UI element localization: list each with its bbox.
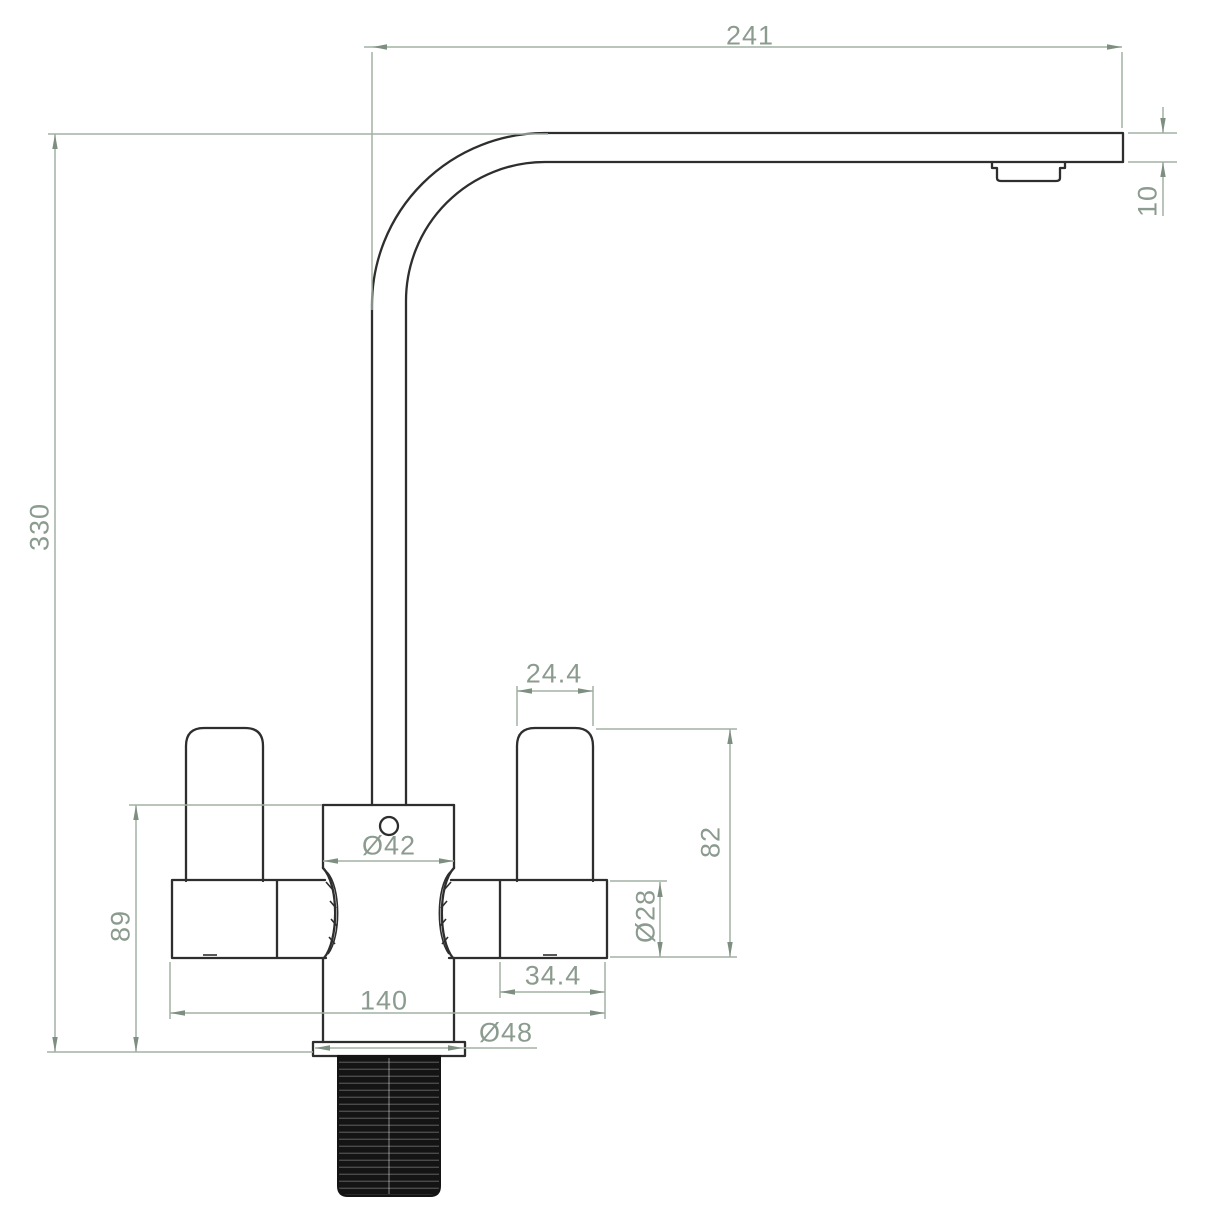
spout-and-riser-outline	[372, 133, 1123, 805]
dim-barrel-length-label: 34.4	[525, 961, 582, 992]
right-handle-barrel	[449, 880, 607, 958]
drawing-page: { "drawing": { "subject": "Kitchen mixer…	[0, 0, 1214, 1214]
dim-spout-height-label: 10	[1133, 185, 1164, 217]
drawing-canvas	[0, 0, 1214, 1214]
dim-handle-width	[517, 686, 593, 726]
dim-overall-width-label: 140	[360, 986, 408, 1017]
spout-nozzle	[992, 162, 1065, 181]
dim-body-diameter-label: Ø42	[362, 831, 416, 862]
dim-overall-height-label: 330	[25, 503, 56, 551]
dim-handle-height-label: 82	[696, 826, 727, 858]
left-handle-barrel	[172, 880, 326, 958]
dim-spout-reach-label: 241	[726, 21, 774, 52]
faucet-technical-drawing: 241 330 10 24.4 82 Ø28 Ø42 34.4 140 Ø48 …	[0, 0, 1214, 1214]
dim-flange-diameter-label: Ø48	[479, 1018, 533, 1049]
dim-spout-reach	[364, 44, 1122, 310]
dim-barrel-diameter-label: Ø28	[631, 889, 662, 943]
right-handle-lever	[517, 728, 593, 881]
dim-body-height-label: 89	[106, 910, 137, 942]
threaded-shank	[338, 1056, 440, 1196]
dim-handle-width-label: 24.4	[526, 659, 583, 690]
base-flange	[313, 1042, 465, 1056]
dim-body-height	[129, 805, 322, 1052]
